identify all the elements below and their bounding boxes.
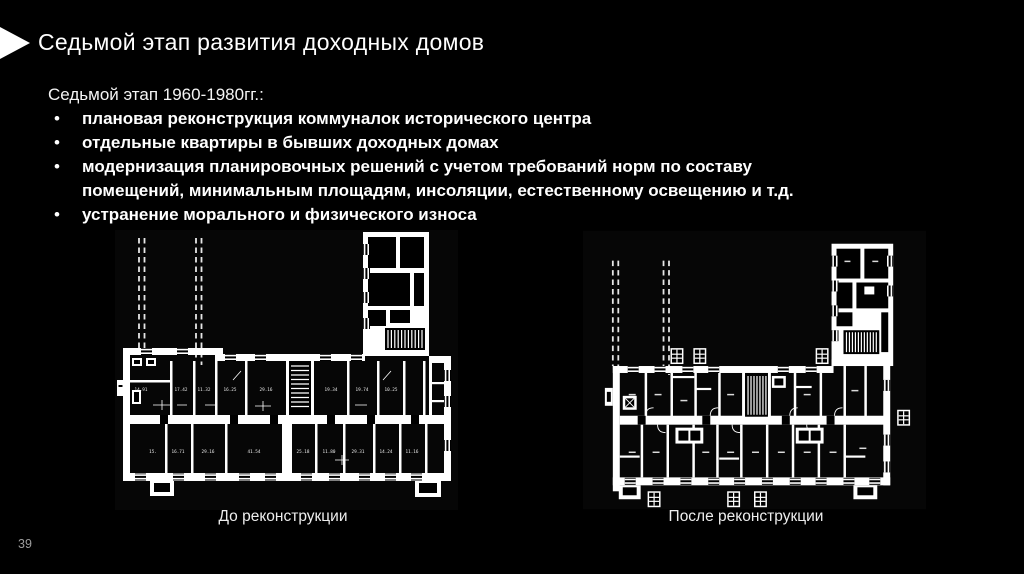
bullet-item: устранение морального и физического изно… [48,203,838,227]
room-label: 29.16 [260,387,273,393]
body-heading: Седьмой этап 1960-1980гг.: [48,83,838,107]
slide-title: Седьмой этап развития доходных домов [38,29,484,56]
room-label: 16.71 [172,449,185,455]
room-label: 19.74 [356,387,369,393]
floorplan-after-image [583,230,926,510]
bullet-item: отдельные квартиры в бывших доходных дом… [48,131,838,155]
bullet-text: устранение морального и физического изно… [82,205,477,224]
room-label: 16.25 [224,387,237,393]
room-label: 19.34 [325,387,338,393]
caption-after: После реконструкции [585,508,907,526]
presentation-slide: Седьмой этап развития доходных домов Сед… [0,0,1024,574]
room-label: 11.80 [323,449,336,455]
floorplan-before-image: 14.91 17.42 11.32 16.25 29.16 19.34 19.7… [115,230,458,510]
page-number: 39 [18,537,32,551]
room-label: 17.42 [175,387,188,393]
title-arrow-icon [0,27,30,59]
wing-block [832,244,894,366]
room-label: 41.54 [248,449,261,455]
bullet-text: модернизация планировочных решений с уче… [82,157,794,200]
bullet-text: отдельные квартиры в бывших доходных дом… [82,133,499,152]
central-stairwell [289,361,311,415]
bullet-list: плановая реконструкция коммуналок истори… [48,107,838,227]
central-stairwell [745,373,768,417]
room-label: 11.32 [198,387,211,393]
bullet-item: модернизация планировочных решений с уче… [48,155,838,203]
room-label: 10.25 [385,387,398,393]
room-label: 15. [149,449,157,455]
room-label: 29.31 [352,449,365,455]
room-label: 25.18 [297,449,310,455]
room-label: 14.24 [380,449,393,455]
room-label: 14.91 [135,387,148,393]
bullet-item: плановая реконструкция коммуналок истори… [48,107,838,131]
caption-before: До реконструкции [150,508,416,526]
bullet-text: плановая реконструкция коммуналок истори… [82,109,591,128]
room-label: 29.16 [202,449,215,455]
room-label: 11.16 [406,449,419,455]
body-text-block: Седьмой этап 1960-1980гг.: плановая реко… [48,83,838,227]
wing-block [363,232,429,356]
